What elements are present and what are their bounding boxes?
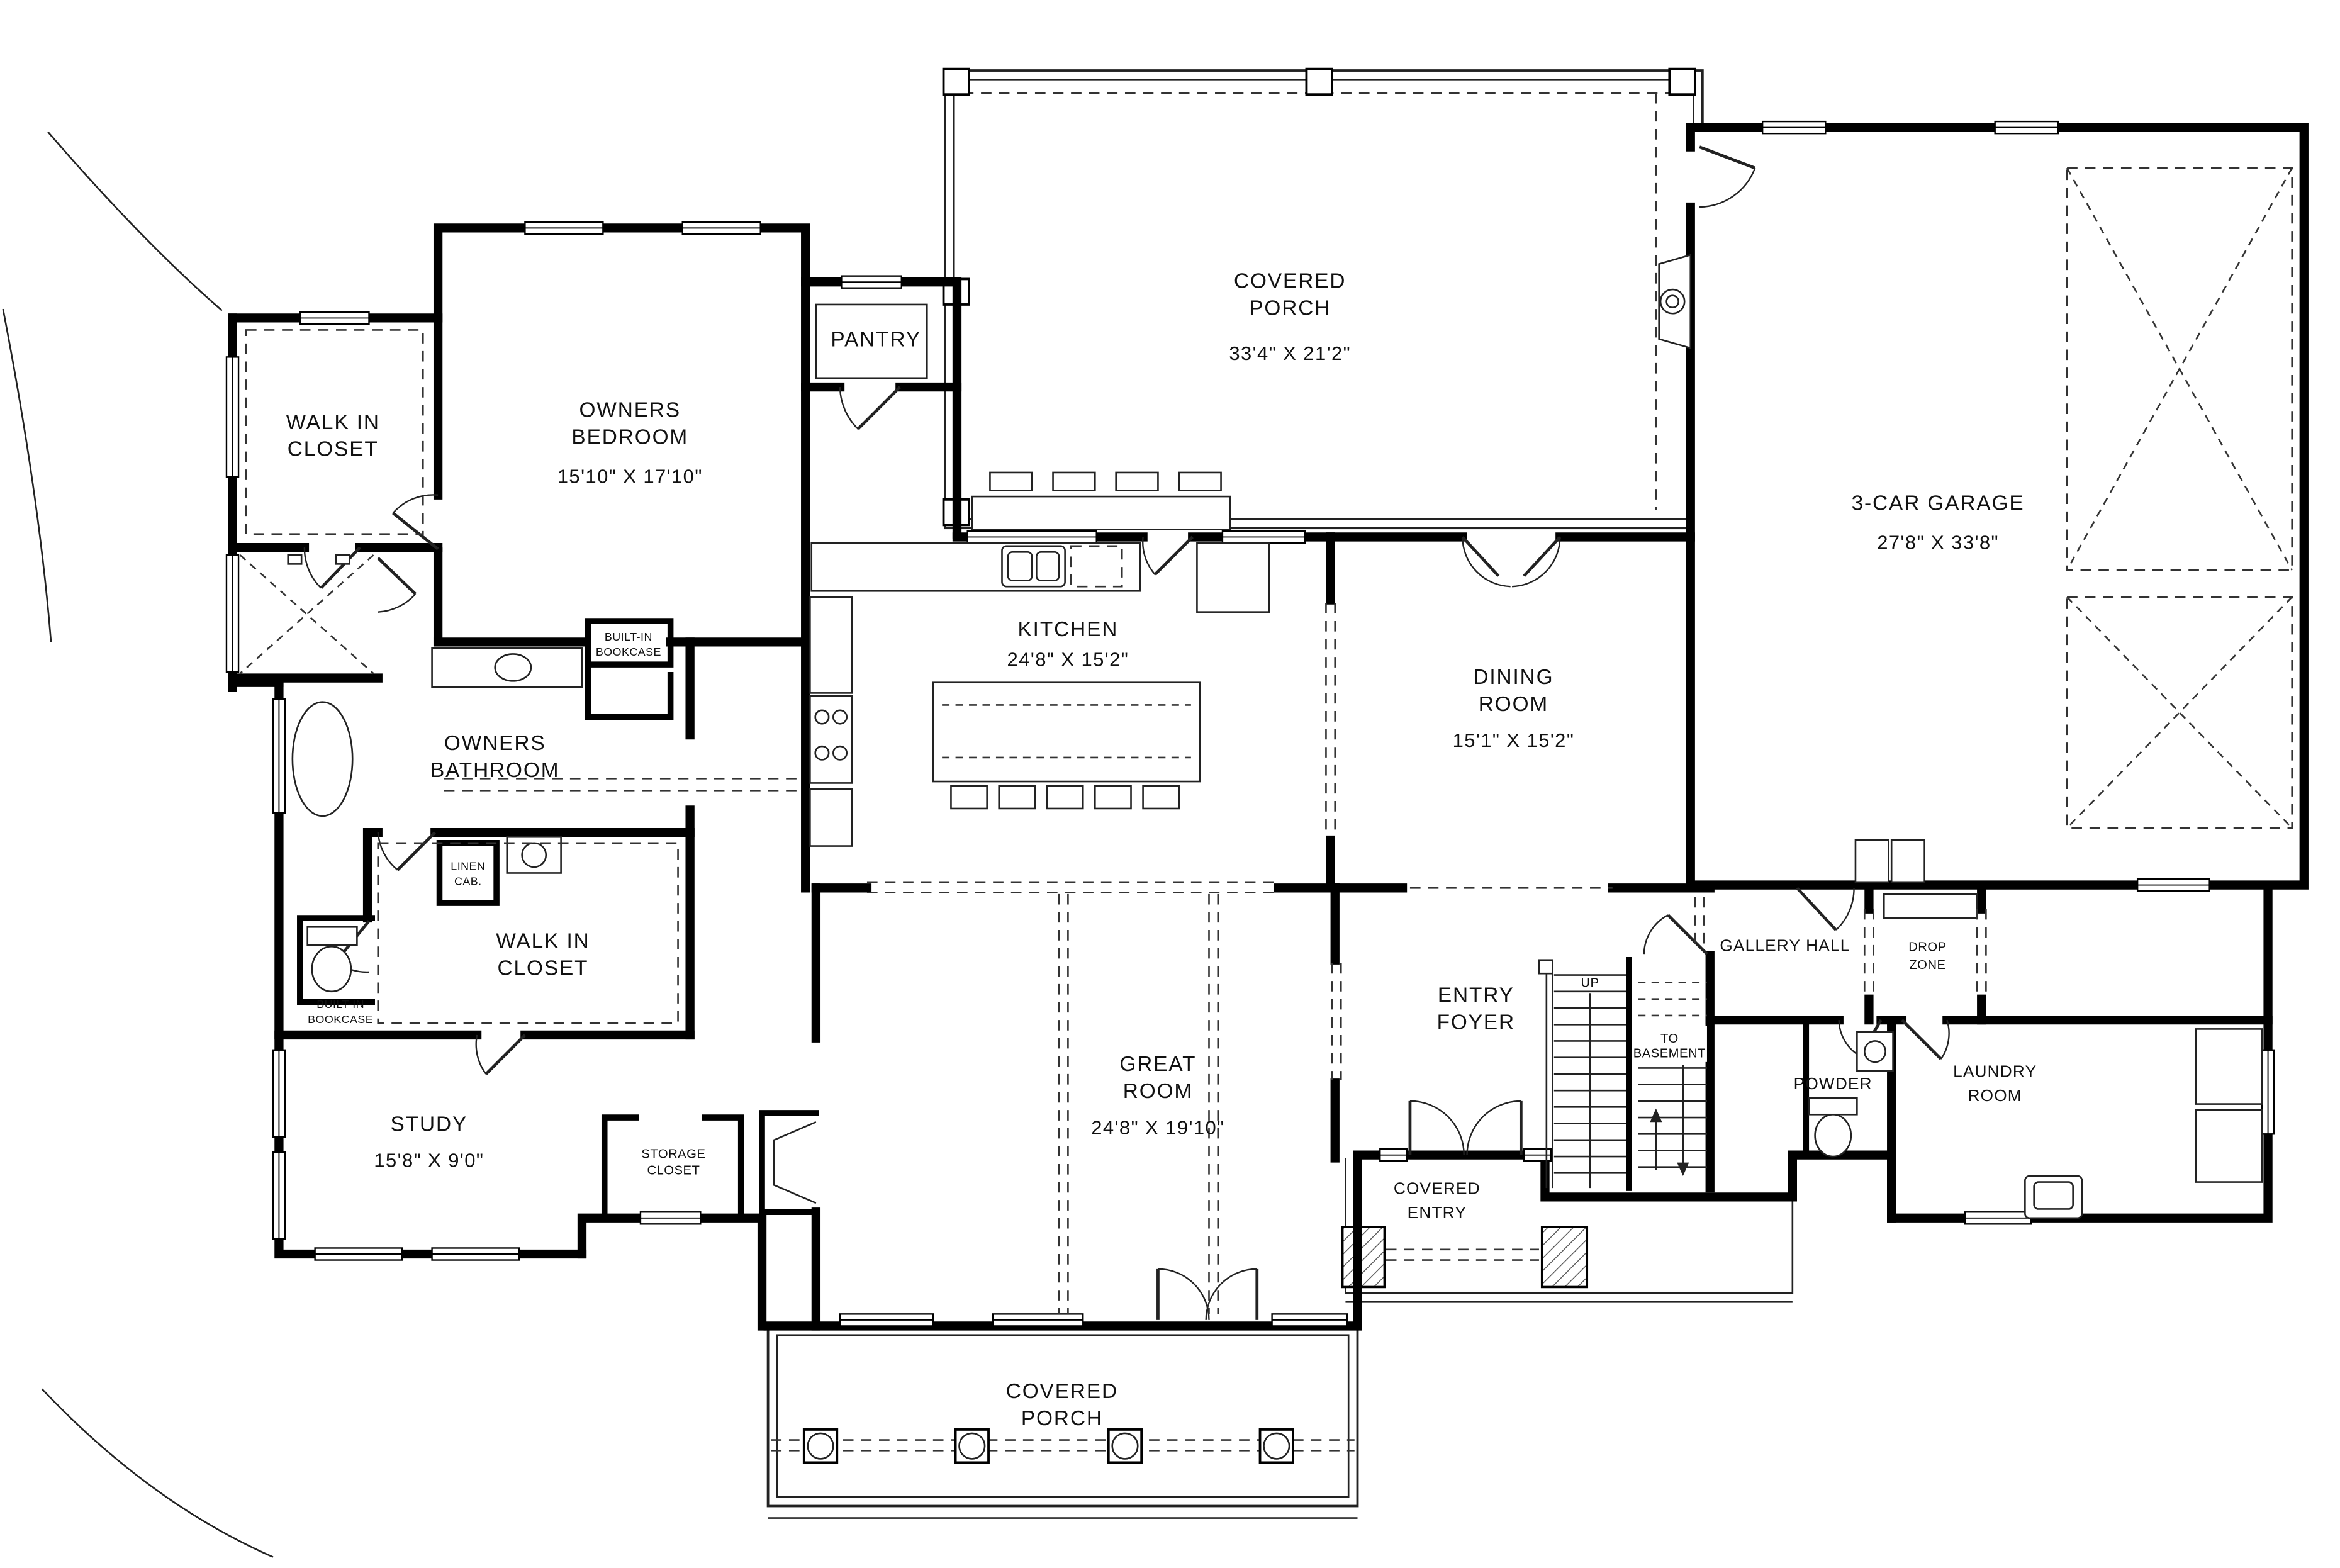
base-cabinet: [810, 789, 852, 846]
label-garage: 3-CAR GARAGE: [1852, 492, 2025, 515]
label-entry-foyer-2: FOYER: [1437, 1011, 1515, 1034]
label-to-basement: TO: [1660, 1032, 1679, 1046]
entry-pier: [1542, 1227, 1587, 1287]
window: [273, 1152, 285, 1239]
window: [1223, 531, 1305, 543]
label-powder: POWDER: [1794, 1074, 1873, 1093]
label-covered-porch-bottom-2: PORCH: [1021, 1407, 1103, 1430]
label-up: UP: [1581, 977, 1599, 990]
window: [227, 555, 238, 672]
label-covered-porch-top: COVERED: [1234, 270, 1346, 293]
label-builtin-bookcase-study: BUILT-IN: [316, 998, 364, 1011]
label-linen-cab: LINEN: [451, 860, 485, 873]
label-owners-bedroom-2: BEDROOM: [571, 426, 688, 449]
label-great-room: GREAT: [1119, 1053, 1196, 1076]
window: [841, 276, 901, 288]
refrigerator: [1197, 543, 1268, 612]
tall-cabinet: [810, 597, 852, 693]
label-walk-in-closet-2: WALK IN: [496, 930, 590, 953]
label-dining-room-2: ROOM: [1479, 693, 1548, 716]
dims-covered-porch-top: 33'4" X 21'2": [1229, 342, 1351, 364]
dims-garage: 27'8" X 33'8": [1877, 532, 1999, 554]
floor-plan-drawing: COVERED PORCH 33'4" X 21'2" 3-CAR GARAGE…: [0, 0, 2340, 1567]
label-covered-porch-top-2: PORCH: [1249, 297, 1331, 320]
range: [810, 696, 852, 783]
window: [641, 1212, 700, 1224]
window: [273, 1050, 285, 1137]
makeup-sink: [507, 837, 561, 873]
window: [968, 531, 1097, 543]
drop-zone-bench: [1884, 894, 1977, 918]
dims-dining-room: 15'1" X 15'2": [1453, 729, 1575, 751]
entry-pier: [1343, 1227, 1385, 1287]
outdoor-bar-counter: [972, 496, 1230, 529]
label-owners-bathroom: OWNERS: [444, 732, 546, 755]
label-builtin-bookcase-bath-2: BOOKCASE: [596, 646, 661, 658]
floor-plan-page: COVERED PORCH 33'4" X 21'2" 3-CAR GARAGE…: [0, 0, 2340, 1567]
window: [683, 222, 761, 234]
dims-study: 15'8" X 9'0": [374, 1150, 484, 1172]
dims-great-room: 24'8" X 19'10": [1091, 1116, 1224, 1138]
dims-kitchen: 24'8" X 15'2": [1007, 648, 1129, 670]
window: [273, 699, 285, 813]
label-covered-entry: COVERED: [1394, 1179, 1481, 1198]
window: [315, 1248, 402, 1260]
label-storage-closet-2: CLOSET: [647, 1164, 700, 1178]
label-linen-cab-2: CAB.: [454, 875, 482, 888]
label-builtin-bookcase-study-2: BOOKCASE: [308, 1013, 373, 1026]
label-study: STUDY: [391, 1113, 468, 1136]
label-laundry-room: LAUNDRY: [1953, 1062, 2037, 1081]
label-walk-in-closet-2-2: CLOSET: [498, 957, 589, 980]
label-covered-porch-bottom: COVERED: [1006, 1380, 1118, 1403]
bar-stool: [1053, 473, 1095, 491]
porch-column: [944, 69, 970, 95]
window: [2262, 1050, 2274, 1134]
bar-stool: [1179, 473, 1221, 491]
porch-fireplace: [1659, 255, 1691, 348]
label-great-room-2: ROOM: [1123, 1080, 1193, 1103]
window: [432, 1248, 519, 1260]
dims-owners-bedroom: 15'10" X 17'10": [557, 466, 703, 488]
window: [300, 312, 369, 324]
porch-column: [1669, 69, 1695, 95]
label-owners-bedroom: OWNERS: [579, 399, 681, 422]
label-covered-entry-2: ENTRY: [1408, 1203, 1467, 1222]
label-laundry-room-2: ROOM: [1968, 1086, 2022, 1105]
label-drop-zone: DROP: [1908, 940, 1946, 954]
label-pantry: PANTRY: [831, 328, 921, 352]
bathtub: [293, 702, 352, 816]
window: [1762, 121, 1825, 133]
label-dining-room: DINING: [1473, 666, 1553, 689]
label-walk-in-closet-1: WALK IN: [286, 411, 380, 434]
bar-stool: [990, 473, 1032, 491]
vanity-sink: [432, 648, 582, 687]
label-entry-foyer: ENTRY: [1438, 983, 1514, 1007]
window: [1995, 121, 2058, 133]
window: [1380, 1149, 1407, 1161]
kitchen-sink: [1002, 546, 1065, 586]
window: [840, 1314, 933, 1326]
window: [2137, 879, 2209, 891]
label-drop-zone-2: ZONE: [1909, 958, 1945, 972]
window: [525, 222, 603, 234]
label-kitchen: KITCHEN: [1017, 618, 1118, 641]
window: [1965, 1212, 2031, 1224]
label-storage-closet: STORAGE: [641, 1147, 705, 1161]
label-gallery-hall: GALLERY HALL: [1720, 936, 1850, 955]
porch-column: [1306, 69, 1332, 95]
kitchen-island: [933, 683, 1200, 809]
window: [1272, 1314, 1347, 1326]
label-builtin-bookcase-bath: BUILT-IN: [605, 630, 652, 643]
label-to-basement-2: BASEMENT: [1633, 1047, 1706, 1061]
label-walk-in-closet-1-2: CLOSET: [288, 438, 379, 461]
bar-stool: [1116, 473, 1158, 491]
label-owners-bathroom-2: BATHROOM: [430, 759, 560, 782]
window: [993, 1314, 1083, 1326]
window: [227, 357, 238, 477]
